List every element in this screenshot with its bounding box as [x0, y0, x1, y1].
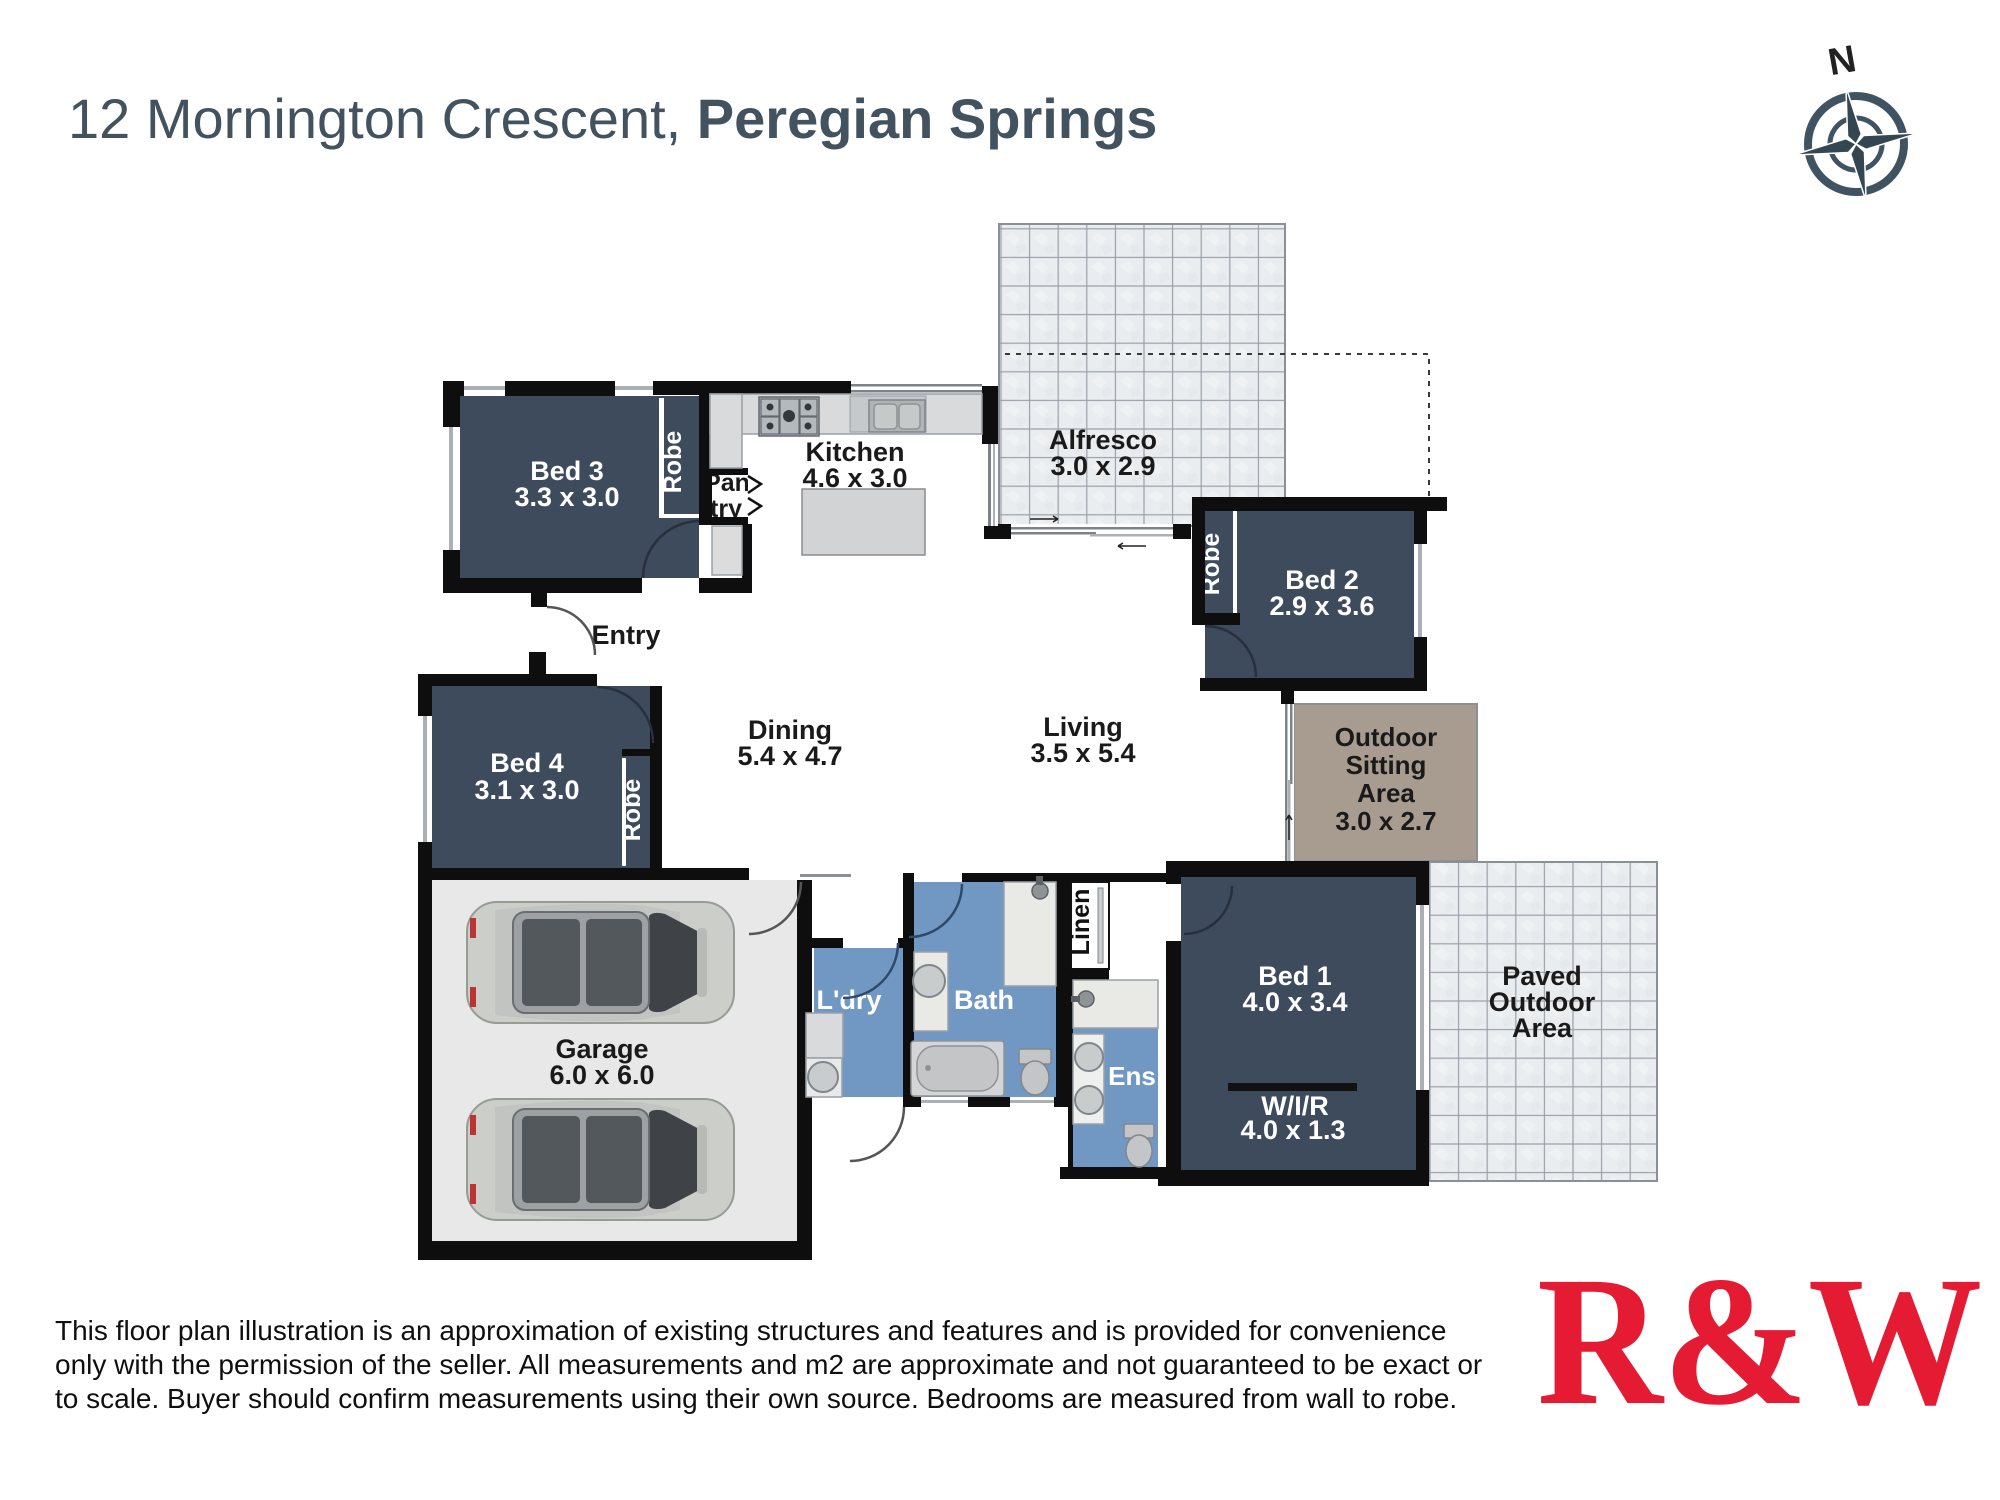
svg-text:Outdoor: Outdoor	[1335, 722, 1438, 752]
svg-text:only with the permission of th: only with the permission of the seller. …	[55, 1349, 1482, 1380]
svg-text:3.3 x 3.0: 3.3 x 3.0	[514, 482, 619, 512]
svg-text:Area: Area	[1357, 778, 1415, 808]
svg-text:3.1 x 3.0: 3.1 x 3.0	[474, 775, 579, 805]
svg-text:Sitting: Sitting	[1346, 750, 1427, 780]
svg-text:3.0 x 2.9: 3.0 x 2.9	[1050, 451, 1155, 481]
svg-text:Bath: Bath	[954, 985, 1014, 1015]
svg-text:Robe: Robe	[618, 779, 646, 842]
svg-text:4.0 x 1.3: 4.0 x 1.3	[1240, 1115, 1345, 1145]
svg-text:3.5 x 5.4: 3.5 x 5.4	[1030, 738, 1135, 768]
svg-text:6.0 x 6.0: 6.0 x 6.0	[549, 1060, 654, 1090]
svg-text:5.4 x 4.7: 5.4 x 4.7	[737, 741, 842, 771]
svg-text:This floor plan illustration i: This floor plan illustration is an appro…	[55, 1315, 1446, 1346]
svg-text:Linen: Linen	[1067, 889, 1095, 956]
svg-text:2.9 x 3.6: 2.9 x 3.6	[1269, 591, 1374, 621]
svg-text:4.0 x 3.4: 4.0 x 3.4	[1242, 987, 1347, 1017]
svg-text:12 Mornington Crescent, Peregi: 12 Mornington Crescent, Peregian Springs	[68, 87, 1157, 150]
svg-text:3.0 x 2.7: 3.0 x 2.7	[1335, 806, 1436, 836]
svg-text:Entry: Entry	[591, 620, 660, 650]
svg-text:Area: Area	[1512, 1013, 1573, 1043]
svg-text:Robe: Robe	[659, 431, 687, 494]
svg-text:Ens: Ens	[1108, 1061, 1156, 1091]
svg-text:to scale. Buyer should confirm: to scale. Buyer should confirm measureme…	[55, 1383, 1457, 1414]
svg-text:R&W: R&W	[1537, 1238, 1982, 1443]
svg-text:Bed 4: Bed 4	[490, 748, 564, 778]
